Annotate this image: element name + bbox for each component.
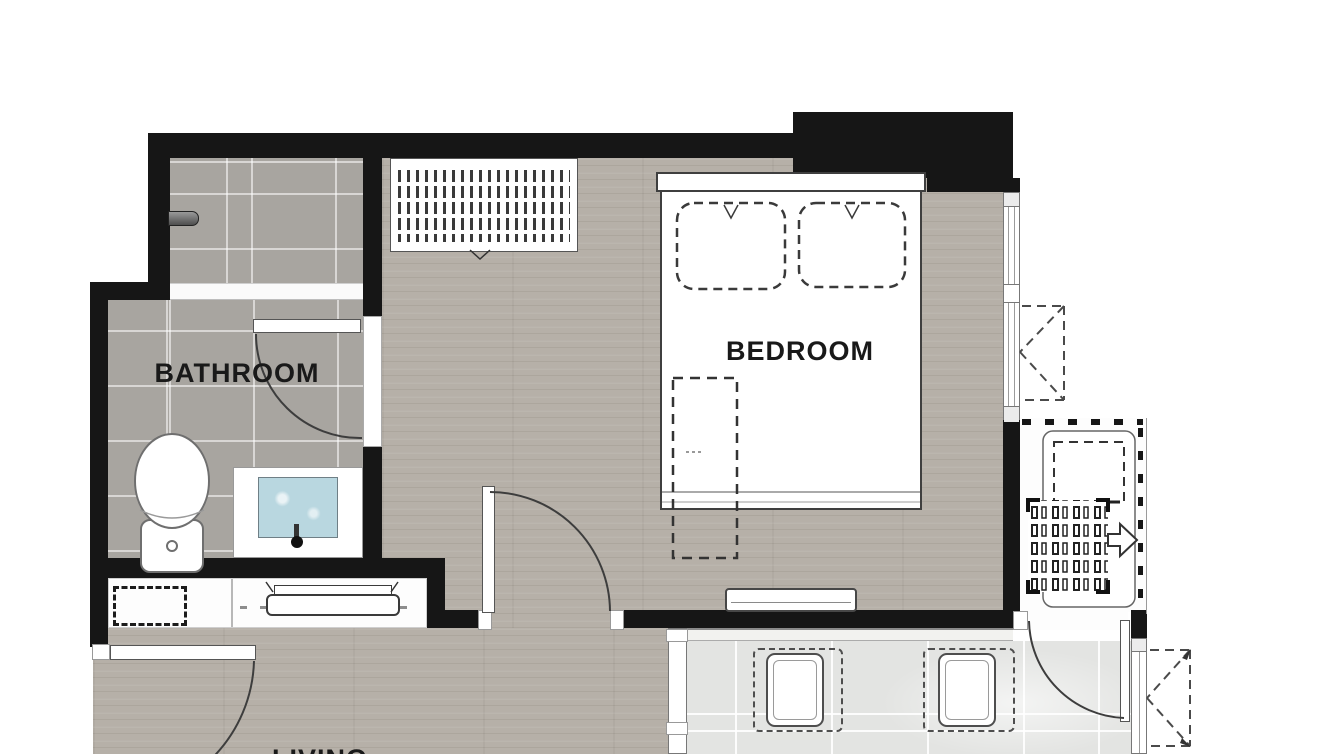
toilet-flush-button: [167, 541, 177, 551]
pillow-left: [677, 203, 785, 289]
bedroom-door-swing: [490, 492, 610, 611]
floor-plan-canvas: BATHROOM BEDROOM LIVING: [0, 0, 1342, 754]
living-label: LIVING: [250, 744, 390, 754]
counter-corner-ticks: [266, 582, 398, 592]
entrance-door-swing: [111, 661, 254, 754]
wardrobe-chevron: [470, 250, 490, 259]
balcony-door-swing: [1029, 621, 1124, 718]
toilet-bowl: [135, 434, 209, 528]
ac-grille: [1028, 500, 1108, 592]
bedroom-casement-symbol: [1020, 306, 1064, 400]
bathroom-label: BATHROOM: [122, 358, 352, 389]
pillow-right: [799, 203, 905, 287]
bedroom-label: BEDROOM: [702, 336, 898, 367]
balcony-casement-symbol: [1147, 650, 1190, 746]
bed-side-dashed-space: [673, 378, 737, 558]
